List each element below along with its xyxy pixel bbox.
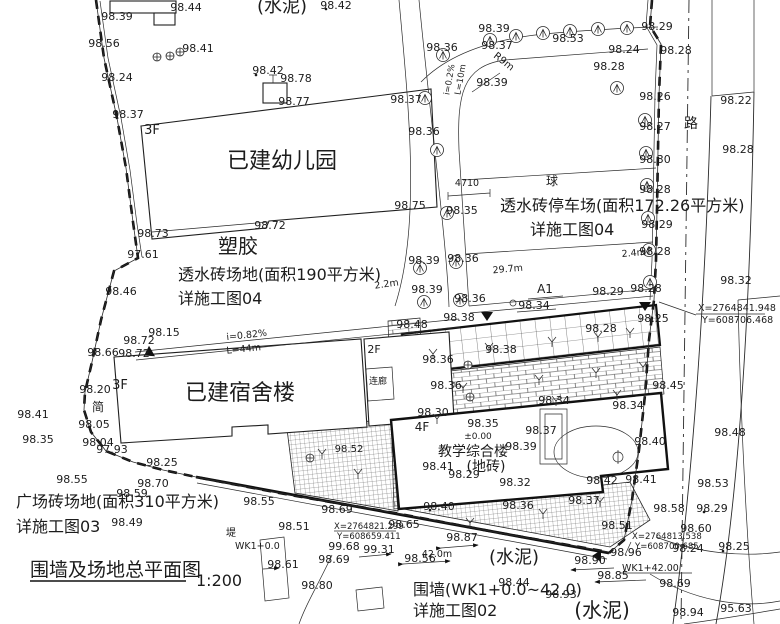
storey-label: 2F [367,343,380,356]
elevation-label: 98.49 [111,516,143,529]
drawing-title: 围墙及场地总平面图 [30,559,201,581]
small-tree-icon [166,52,174,60]
elevation-label: 98.25 [637,312,669,325]
elevation-label: 98.39 [476,76,508,89]
elevation-label: 98.22 [720,94,752,107]
elevation-label: 98.25 [718,540,750,553]
small-tree-icon [153,53,161,61]
elevation-label: 95.63 [720,602,752,615]
elevation-label: 98.69 [321,503,353,516]
coordinate-label: Y=608706.468 [701,315,773,326]
elevation-label: 98.36 [447,252,479,265]
elevation-label: 球 [546,174,558,188]
elevation-label: 98.29 [641,218,673,231]
elevation-label: 98.39 [478,22,510,35]
elevation-label: 99.31 [363,543,395,556]
elevation-label: 98.51 [601,519,633,532]
elevation-label: 98.32 [499,476,531,489]
elevation-label: 98.27 [639,120,671,133]
elevation-label: 简 [92,400,104,414]
elevation-label: 98.55 [56,473,88,486]
elevation-label: 99.68 [328,540,360,553]
elevation-label: 98.42 [252,64,284,77]
elevation-label: 98.80 [301,579,333,592]
small-tree-icon [466,393,474,401]
elevation-label: 98.28 [585,322,617,335]
elevation-label: 98.25 [146,456,178,469]
tree-icon [431,144,444,157]
elevation-label: 98.35 [22,433,54,446]
elevation-label: 98.48 [714,426,746,439]
storey-label: 3F [112,378,128,393]
elevation-label: 98.41 [17,408,49,421]
elevation-label: 98.69 [318,553,350,566]
elevation-label: 98.34 [538,394,570,407]
elevation-label: 98.26 [639,90,671,103]
elevation-label: 98.29 [448,468,480,481]
elevation-label: 98.75 [394,199,426,212]
elevation-label: 98.58 [653,502,685,515]
elevation-label: 98.66 [87,346,119,359]
area-label-cement: (水泥) [257,0,307,17]
elevation-label: 98.72 [118,347,150,360]
storey-label: 3F [144,123,160,138]
elevation-label: 98.36 [408,125,440,138]
small-tree-icon [464,361,472,369]
elevation-label: 98.60 [680,522,712,535]
note-detail-03: 详施工图03 [16,517,100,536]
elevation-label: 98.42 [586,474,618,487]
elevation-label: 98.37 [390,93,422,106]
wall-station-label: WK1+42.00 [622,563,679,574]
elevation-label: 98.24 [101,71,133,84]
site-plan-drawing: 98.3998.44(水泥)98.4298.5698.4198.2498.429… [0,0,780,624]
note-plaza-brick-ground: 广场砖场地(面积310平方米) [16,492,219,511]
elevation-label: 98.45 [652,379,684,392]
wall-station-label: WK1+0.0 [235,541,280,552]
elevation-label: 98.73 [137,227,169,240]
elevation-label: 98.53 [552,32,584,45]
elevation-label: 98.56 [88,37,120,50]
note-detail-04: 详施工图04 [178,289,262,308]
elevation-label: 98.20 [79,383,111,396]
building-label-dormitory: 已建宿舍楼 [185,381,295,406]
coordinate-label: X=2764841.948 [698,303,776,314]
elevation-label: 98.39 [411,283,443,296]
elevation-label: 98.48 [396,318,428,331]
note-detail-02: 详施工图02 [413,601,497,620]
elevation-label: 98.34 [518,299,550,312]
elevation-label: 98.28 [630,282,662,295]
elevation-label: 98.29 [696,502,728,515]
elevation-label: 97.93 [96,443,128,456]
elevation-label: R9m [491,51,516,74]
elevation-label: 98.94 [672,606,704,619]
elevation-label: 98.93 [545,588,577,601]
elevation-label: 98.39 [408,254,440,267]
corridor-label: 连廊 [369,375,387,387]
elevation-label: 98.24 [672,542,704,555]
elevation-label: 98.72 [254,219,286,232]
elevation-label: 98.44 [170,1,202,14]
elevation-label: 29.7m [492,263,523,277]
elevation-label: 98.36 [430,379,462,392]
section-marker-label: A1 [537,282,553,296]
storey-label: 4F [415,420,430,434]
elevation-label: 98.39 [505,440,537,453]
elevation-label: 98.36 [422,353,454,366]
tree-icon [592,23,605,36]
elevation-label: 98.72 [123,334,155,347]
elevation-label: 98.24 [608,43,640,56]
elevation-label: 98.41 [182,42,214,55]
road-label: 路 [684,116,698,132]
elevation-label: 98.35 [446,204,478,217]
elevation-label: 98.38 [485,343,517,356]
area-label-cement: (水泥) [574,598,630,622]
elevation-label: 98.29 [641,20,673,33]
elevation-label: 98.42 [320,0,352,12]
elevation-label: 98.29 [592,285,624,298]
elevation-label: 堤 [226,527,236,539]
elevation-label: 98.37 [481,39,513,52]
elevation-label: 98.77 [278,95,310,108]
note-detail-04: 详施工图04 [530,220,614,239]
elevation-label: 98.28 [660,44,692,57]
small-structure [154,13,175,25]
area-label-rubber: 塑胶 [218,234,258,258]
elevation-label: i=0.82% [226,328,268,343]
building-label-kindergarten: 已建幼儿园 [227,149,337,174]
building-label-teaching: 教学综合楼 [438,444,508,460]
elevation-label: 98.35 [467,417,499,430]
elevation-label: 4710 [455,178,479,189]
elevation-label: 98.39 [101,10,133,23]
elevation-label: 98.78 [280,72,312,85]
elevation-label: 98.38 [443,311,475,324]
elevation-label: 98.28 [593,60,625,73]
elevation-label: 98.87 [446,531,478,544]
note-permeable-brick-ground: 透水砖场地(面积190平方米) [178,265,381,284]
elevation-label: 98.69 [659,577,691,590]
tree-icon [611,82,624,95]
elevation-label: 98.32 [720,274,752,287]
note-permeable-brick-parking: 透水砖停车场(面积172.26平方米) [500,196,744,215]
elevation-label: 98.28 [722,143,754,156]
elevation-label: 98.36 [502,499,534,512]
elevation-label: 98.53 [697,477,729,490]
elevation-label: 98.51 [278,520,310,533]
elevation-label: 98.36 [426,41,458,54]
elevation-label: 98.61 [267,558,299,571]
elevation-label: 98.37 [112,108,144,121]
elevation-label: 98.40 [634,435,666,448]
elevation-label: 98.37 [525,424,557,437]
elevation-label: 42.0m [422,549,452,560]
elevation-label: 98.65 [388,518,420,531]
elevation-label: 98.05 [78,418,110,431]
elevation-label: 98.34 [612,399,644,412]
elevation-label: 98.37 [568,494,600,507]
elevation-label: ±0.00 [464,432,492,442]
elevation-label: 97.61 [127,248,159,261]
elevation-label: 98.52 [335,444,364,455]
elevation-label: 98.44 [498,576,530,589]
arrow-marker-icon [481,312,493,321]
elevation-label: 2.4m [621,247,646,260]
elevation-label: 98.46 [105,285,137,298]
elevation-label: 98.36 [454,292,486,305]
site-plan-page: 98.3998.44(水泥)98.4298.5698.4198.2498.429… [0,0,780,624]
tree-icon [537,27,550,40]
tree-icon [418,296,431,309]
label-layer: 98.3998.44(水泥)98.4298.5698.4198.2498.429… [16,0,776,622]
elevation-label: 98.28 [639,183,671,196]
elevation-label: 98.85 [597,569,629,582]
elevation-label: 98.55 [243,495,275,508]
tree-icon [621,22,634,35]
small-tree-icon [306,454,314,462]
elevation-label: 98.30 [417,406,449,419]
elevation-label: 98.40 [423,500,455,513]
drawing-scale: 1:200 [196,571,242,590]
elevation-label: 98.90 [574,554,606,567]
elevation-label: 98.41 [625,473,657,486]
elevation-label: 98.30 [639,153,671,166]
elevation-label: 2.2m [374,277,400,291]
area-label-cement: (水泥) [489,547,539,568]
